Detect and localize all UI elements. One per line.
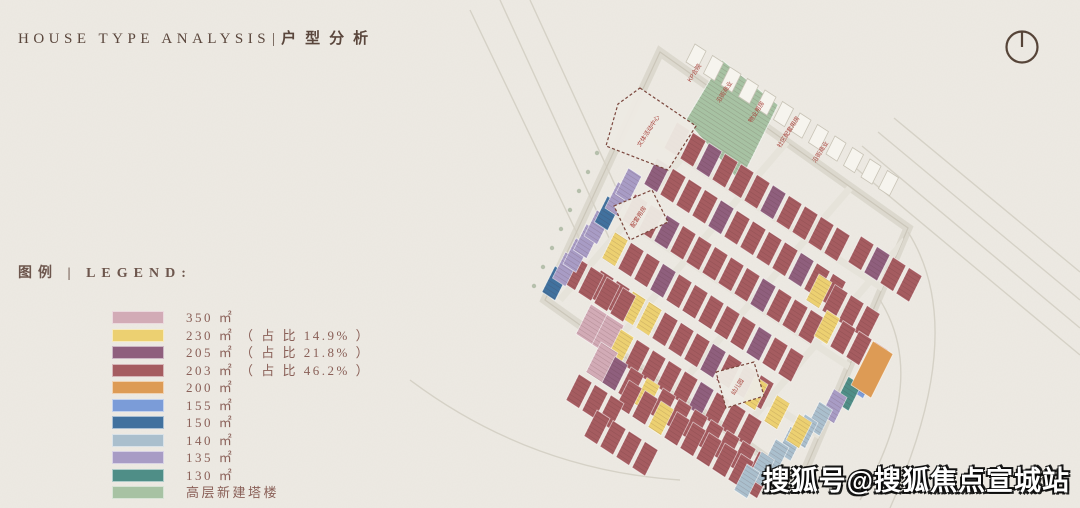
tree	[541, 265, 545, 269]
tree	[532, 284, 536, 288]
legend-label: 205 ㎡ （ 占 比 21.8% ）	[186, 346, 371, 359]
legend-label: 150 ㎡	[186, 416, 234, 429]
tree	[595, 151, 599, 155]
legend-item: 350 ㎡	[112, 311, 371, 324]
legend-item: 155 ㎡	[112, 399, 371, 412]
legend-label: 203 ㎡ （ 占 比 46.2% ）	[186, 364, 371, 377]
page: 文体活动中心配套用房幼儿园KP合院沿街商业物业用房社区配套用房沿街商业 HOUS…	[0, 0, 1080, 508]
north-compass-icon	[1003, 28, 1041, 66]
page-title: HOUSE TYPE ANALYSIS|户型分析	[18, 27, 377, 48]
legend-swatch-135	[112, 451, 164, 464]
tree	[577, 189, 581, 193]
legend-item: 230 ㎡ （ 占 比 14.9% ）	[112, 329, 371, 342]
legend-item: 135 ㎡	[112, 451, 371, 464]
tree	[568, 208, 572, 212]
page-title-en: HOUSE TYPE ANALYSIS	[18, 31, 270, 47]
legend-label: 230 ㎡ （ 占 比 14.9% ）	[186, 329, 371, 342]
legend-swatch-230	[112, 329, 164, 342]
legend-swatch-150	[112, 416, 164, 429]
watermark: 搜狐号@搜狐焦点宣城站	[763, 459, 1070, 498]
legend: 350 ㎡230 ㎡ （ 占 比 14.9% ）205 ㎡ （ 占 比 21.8…	[112, 311, 371, 504]
legend-label: 200 ㎡	[186, 381, 234, 394]
legend-item: 130 ㎡	[112, 469, 371, 482]
title-divider: |	[272, 31, 275, 47]
legend-swatch-350	[112, 311, 164, 324]
tree	[586, 170, 590, 174]
legend-item: 150 ㎡	[112, 416, 371, 429]
tree	[559, 227, 563, 231]
legend-label: 130 ㎡	[186, 469, 234, 482]
legend-swatch-200	[112, 381, 164, 394]
legend-label: 350 ㎡	[186, 311, 234, 324]
legend-swatch-130	[112, 469, 164, 482]
legend-swatch-203	[112, 364, 164, 377]
legend-item: 200 ㎡	[112, 381, 371, 394]
legend-swatch-205	[112, 346, 164, 359]
legend-item: 高层新建塔楼	[112, 486, 371, 499]
legend-item: 203 ㎡ （ 占 比 46.2% ）	[112, 364, 371, 377]
tree	[550, 246, 554, 250]
legend-swatch-140	[112, 434, 164, 447]
legend-label: 155 ㎡	[186, 399, 234, 412]
page-title-zh: 户型分析	[281, 31, 377, 47]
legend-label: 135 ㎡	[186, 451, 234, 464]
legend-swatch-155	[112, 399, 164, 412]
legend-item: 205 ㎡ （ 占 比 21.8% ）	[112, 346, 371, 359]
legend-label: 高层新建塔楼	[186, 486, 279, 499]
legend-swatch-tower	[112, 486, 164, 499]
legend-heading: 图例 | LEGEND:	[18, 262, 192, 282]
legend-item: 140 ㎡	[112, 434, 371, 447]
legend-label: 140 ㎡	[186, 434, 234, 447]
